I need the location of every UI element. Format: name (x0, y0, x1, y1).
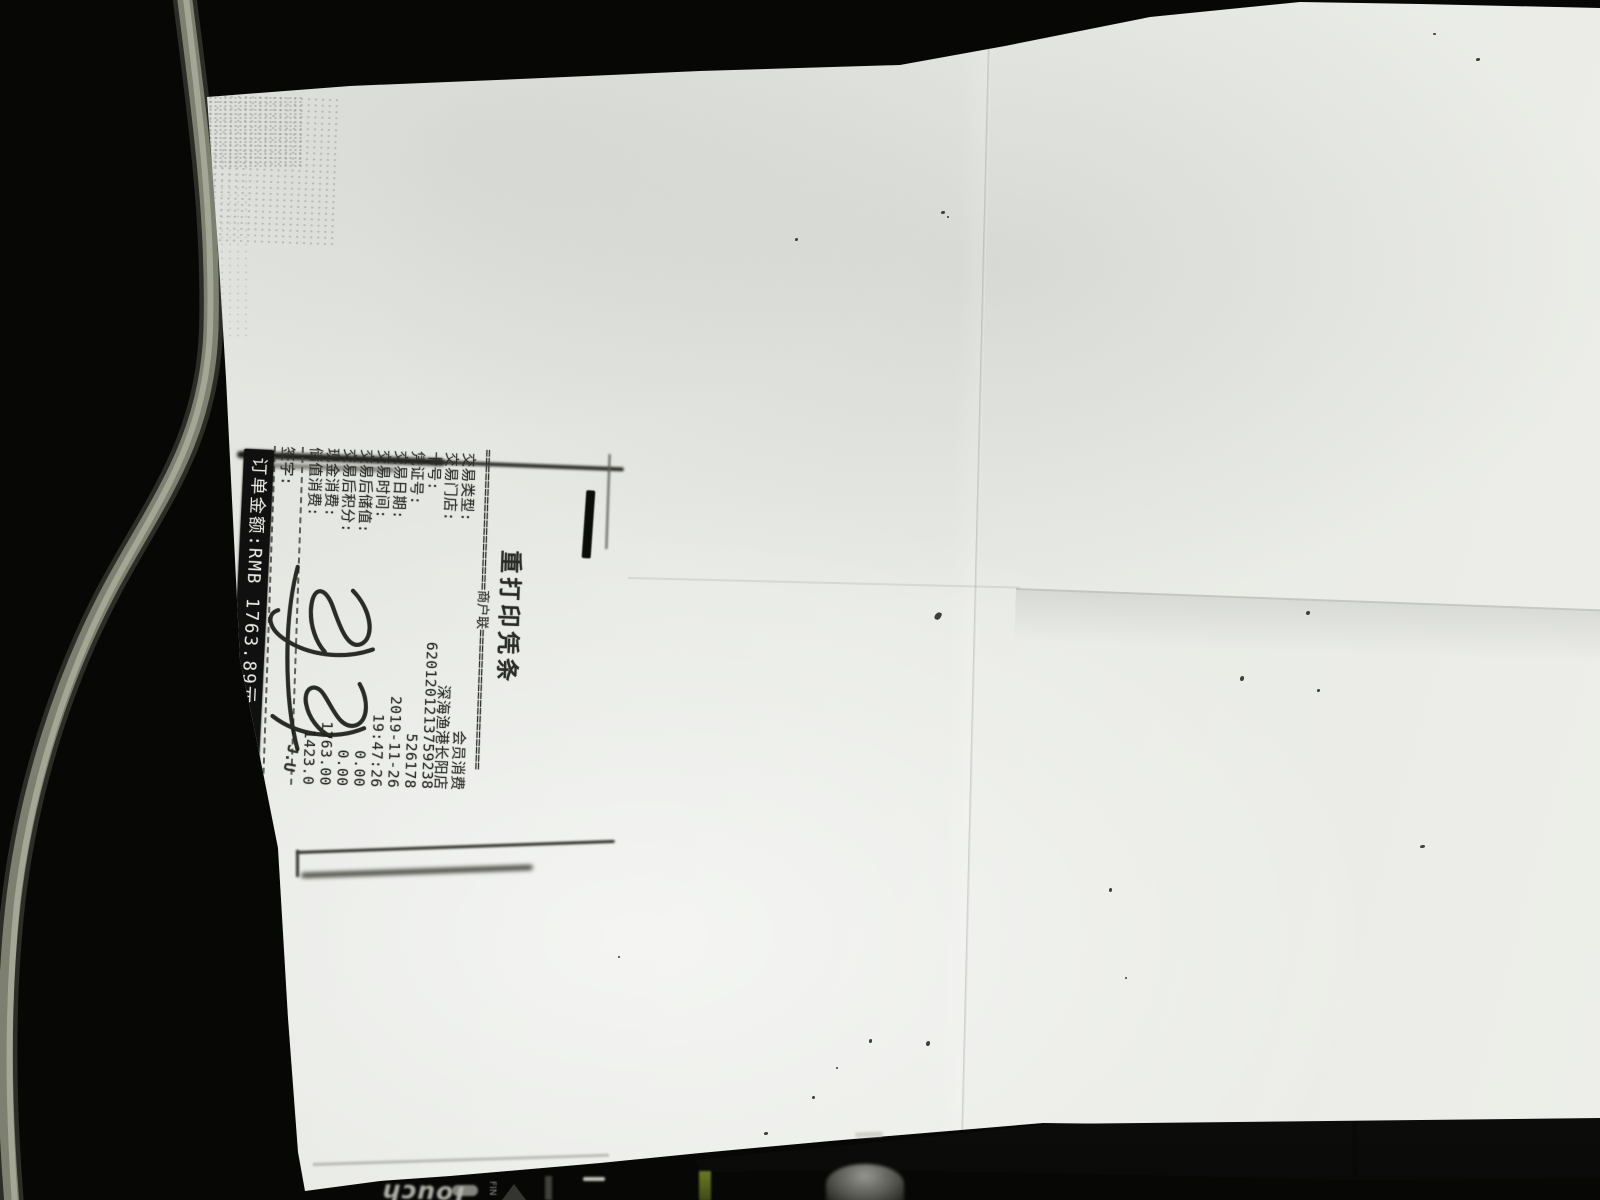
signature (226, 437, 620, 870)
ink-speck (812, 1096, 815, 1099)
vertical-fold-sheen (935, 44, 988, 1134)
reflection-highlight (855, 1132, 883, 1138)
photocopy-grain-patch (202, 93, 342, 248)
ink-speck (764, 1132, 768, 1135)
marker-tip-icon (502, 1184, 526, 1200)
gray-post-object (545, 1176, 552, 1200)
ink-speck (1420, 845, 1425, 848)
ink-speck (795, 238, 798, 241)
photo-scene: 重打印凭条 ==================商户联=============… (0, 0, 1600, 1200)
receipt-photocopy: 重打印凭条 ==================商户联=============… (226, 437, 620, 870)
green-object-sliver (699, 1171, 711, 1200)
ink-speck (1317, 689, 1320, 692)
ink-speck (1109, 888, 1112, 892)
ink-speck (1125, 977, 1127, 979)
desk-seam (1352, 1122, 1358, 1178)
toner-smudge-line (301, 865, 533, 878)
marker-cap-logo (452, 1185, 478, 1196)
ink-speck (926, 1041, 930, 1046)
ink-speck (869, 1039, 872, 1043)
ink-speck (1476, 58, 1480, 61)
photocopy-grain-patch (208, 96, 304, 168)
ink-speck (836, 1067, 838, 1069)
ink-speck (618, 956, 620, 958)
ink-speck (1433, 33, 1436, 35)
metallic-object (826, 1164, 904, 1200)
horizontal-fold-shadow (1014, 590, 1600, 663)
ink-speck (947, 216, 949, 218)
bottom-edge-crease (313, 1154, 609, 1166)
ink-speck (1240, 676, 1244, 681)
reflection-highlight (583, 1177, 605, 1181)
marker-brand-text: Touch (348, 1178, 469, 1200)
ink-speck (934, 611, 943, 621)
ink-speck (941, 211, 945, 214)
marker-small-text: FIN (487, 1181, 497, 1200)
